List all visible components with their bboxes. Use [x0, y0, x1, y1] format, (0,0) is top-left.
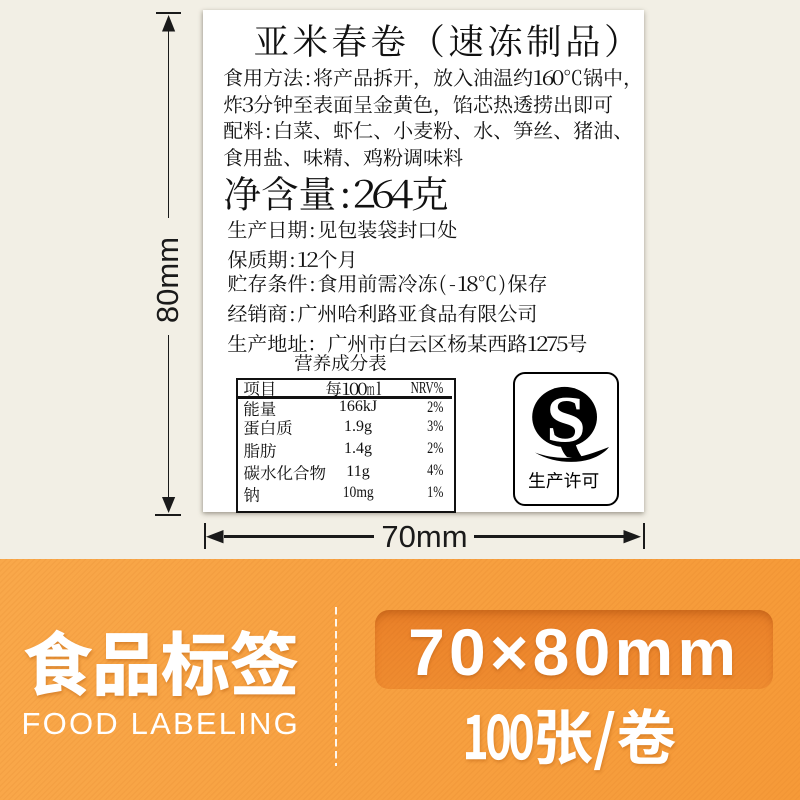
svg-text:S: S — [546, 383, 586, 456]
